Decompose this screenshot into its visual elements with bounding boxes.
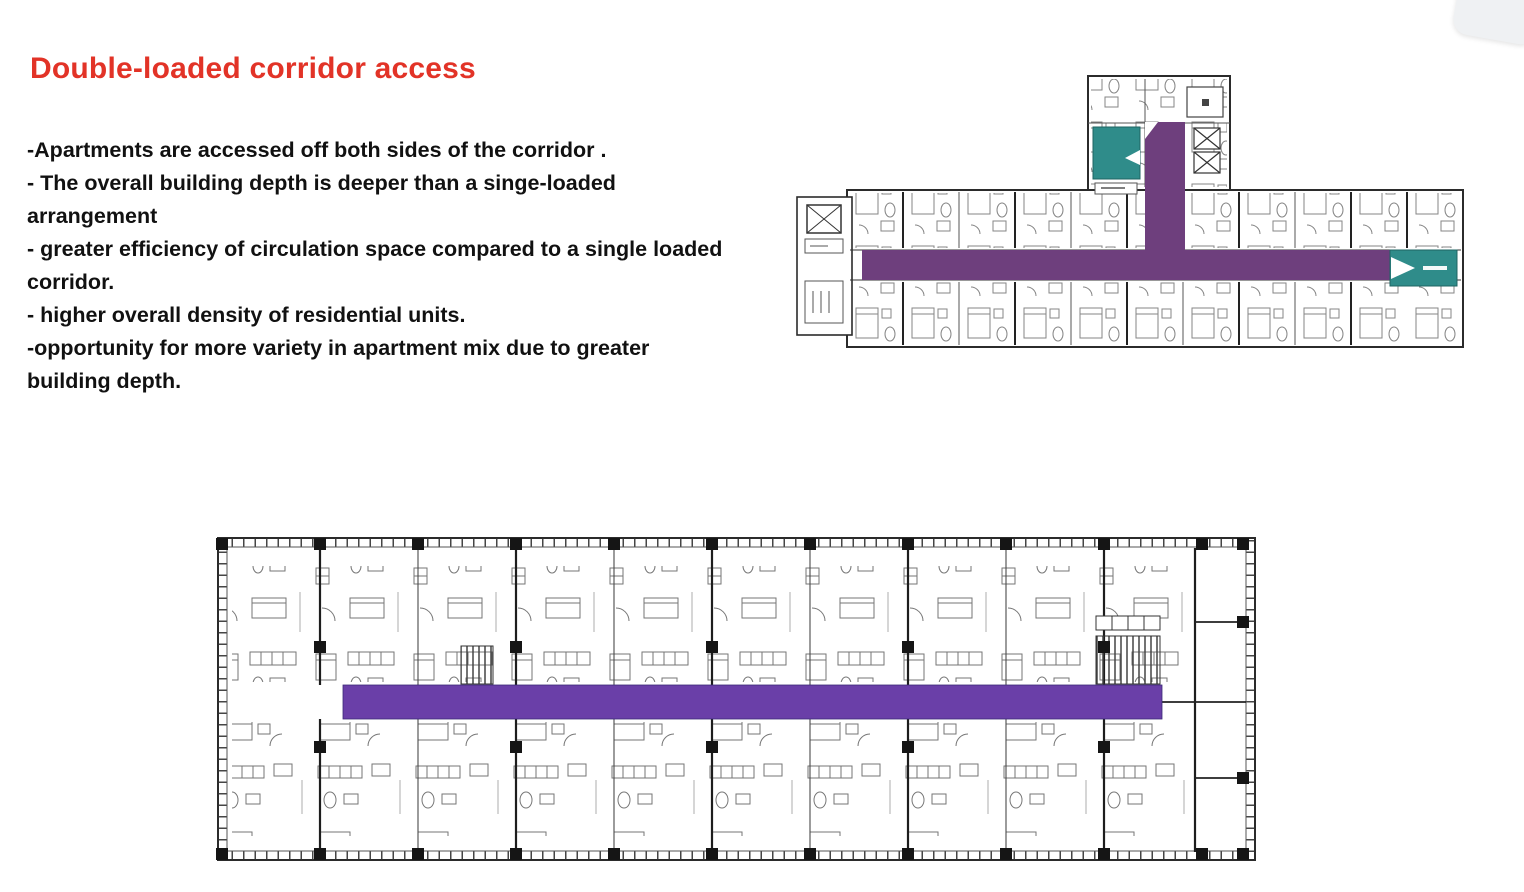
corridor-highlight-bottom [343,685,1162,719]
bullet-line: -opportunity for more variety in apartme… [27,332,735,398]
bullet-list: -Apartments are accessed off both sides … [27,134,735,398]
floorplan-top-svg [795,55,1505,360]
floorplan-bottom-svg [212,532,1262,872]
slide-canvas: Double-loaded corridor access -Apartment… [0,0,1524,892]
stair-core-right [1390,250,1457,286]
bullet-line: - higher overall density of residential … [27,299,735,332]
slide-title: Double-loaded corridor access [30,52,476,86]
bullet-line: - The overall building depth is deeper t… [27,167,735,233]
bullet-line: - greater efficiency of circulation spac… [27,233,735,299]
stair-core-stem [1093,127,1140,194]
floorplan-top [795,55,1505,360]
floorplan-bottom [212,532,1262,872]
bullet-line: -Apartments are accessed off both sides … [27,134,735,167]
browser-corner-overlay[interactable] [1451,0,1524,47]
stem-service-room [1187,87,1223,117]
